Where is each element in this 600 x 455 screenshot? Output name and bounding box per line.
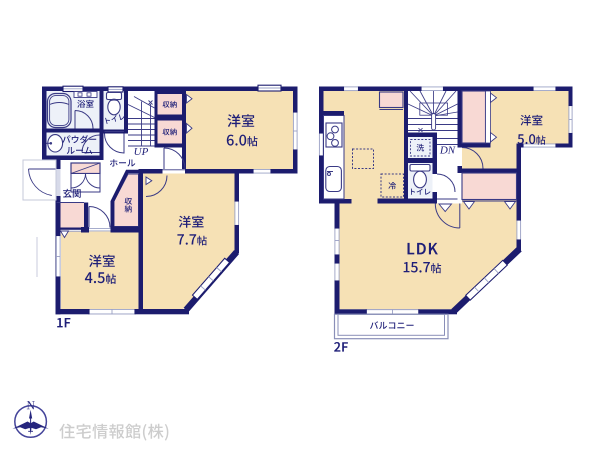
svg-text:DN: DN — [439, 144, 456, 156]
svg-text:UP: UP — [134, 146, 149, 158]
